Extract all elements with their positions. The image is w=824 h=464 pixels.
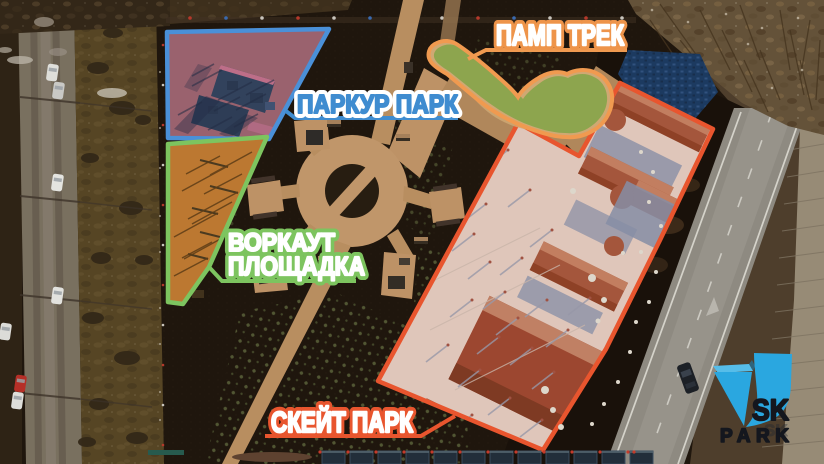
svg-text:СКЕЙТ ПАРК: СКЕЙТ ПАРК <box>271 405 413 439</box>
svg-text:ПЛОЩАДКА: ПЛОЩАДКА <box>228 251 365 281</box>
svg-text:ПАРКУР ПАРК: ПАРКУР ПАРК <box>297 89 458 119</box>
svg-text:SK: SK <box>752 394 789 427</box>
svg-text:ПАМП ТРЕК: ПАМП ТРЕК <box>496 20 624 52</box>
